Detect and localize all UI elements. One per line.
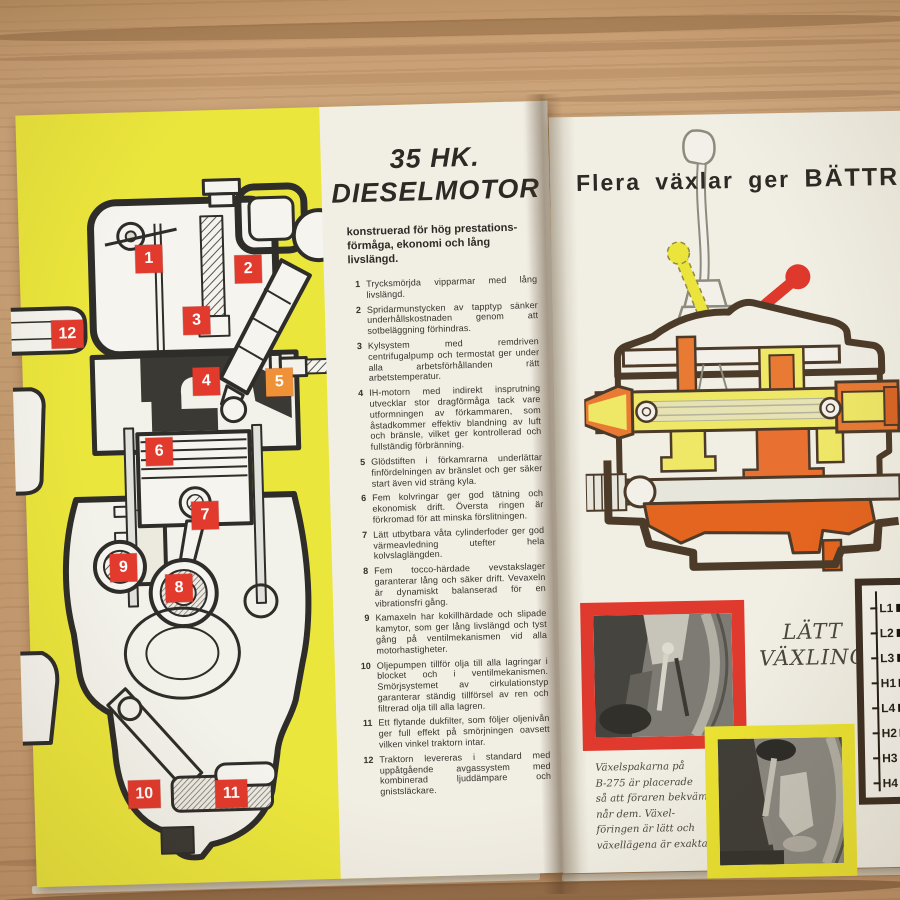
- feature-number: 7: [353, 530, 368, 563]
- feature-item: 2 Spridarmunstycken av tapptyp sänker un…: [347, 300, 539, 338]
- feature-item: 4 IH-motorn med indirekt insprutning utv…: [349, 383, 542, 453]
- brochure-left-page: 1 2 3 4 5 6 7 8 9 10 11 12 35 HK. DIESEL…: [15, 101, 568, 888]
- feature-text: Oljepumpen tillför olja till alla lagrin…: [377, 655, 549, 714]
- engine-part-label-3: 3: [183, 306, 211, 335]
- photo-caption-line: så att föraren bekvämt: [596, 789, 714, 807]
- gear-tick: [874, 782, 881, 784]
- engine-part-label-9: 9: [110, 553, 138, 582]
- feature-number: 11: [358, 718, 373, 751]
- gear-tick: [871, 632, 878, 634]
- feature-text: Lätt utbytbara våta cylinderfoder ger go…: [373, 525, 545, 562]
- feature-text: Ett flytande dukfilter, som följer oljen…: [378, 713, 550, 750]
- gear-tick: [870, 607, 877, 609]
- feature-text: Fem kolvringar ger god tätning och ekono…: [372, 488, 544, 525]
- page-title-line2: DIESELMOTOR: [329, 172, 542, 211]
- feature-text: Traktorn levereras i standard med uppåtg…: [379, 750, 551, 798]
- gear-position-row: H1: [871, 669, 900, 695]
- gear-position-label: H1: [881, 675, 897, 689]
- easy-shifting-line1: LÄTT: [756, 617, 868, 645]
- feature-text: Fem tocco-härdade vevstakslager garanter…: [374, 561, 546, 609]
- headline-caps: BÄTTRE ARB: [804, 161, 900, 192]
- feature-item: 5 Glödstiften i förkamrarna underlättar …: [351, 452, 543, 490]
- intro-paragraph: konstruerad för hög prestations-förmåga,…: [347, 220, 534, 267]
- feature-item: 9 Kamaxeln har kokillhärdade och slipade…: [355, 608, 547, 657]
- gear-position-label: L4: [881, 700, 895, 714]
- wood-grain-streak: [540, 88, 900, 104]
- gear-tick: [873, 732, 880, 734]
- feature-number: 10: [357, 660, 373, 714]
- wood-grain-streak: [0, 62, 900, 91]
- feature-number: 4: [349, 388, 365, 453]
- gear-shift-pattern-chart: L1 L2 L3 H1: [855, 577, 900, 805]
- gear-position-row: L1: [870, 594, 900, 620]
- feature-number: 2: [347, 305, 362, 338]
- feature-text: Kylsystem med remdriven centrifugalpump …: [368, 336, 540, 384]
- wood-table-surface: 1 2 3 4 5 6 7 8 9 10 11 12 35 HK. DIESEL…: [0, 0, 900, 900]
- feature-text: Spridarmunstycken av tapptyp sänker unde…: [367, 300, 539, 337]
- feature-text: Trycksmörjda vipparmar med lång livsläng…: [366, 274, 538, 300]
- engine-part-label-4: 4: [192, 367, 220, 396]
- gear-position-row: L2: [870, 619, 900, 645]
- feature-text: Kamaxeln har kokillhärdade och slipade k…: [375, 608, 547, 656]
- engine-cutaway-diagram: [7, 175, 346, 874]
- feature-item: 8 Fem tocco-härdade vevstakslager garant…: [354, 561, 546, 610]
- engine-part-label-2: 2: [234, 255, 262, 284]
- gear-position-row: L3: [871, 644, 900, 670]
- feature-number: 5: [351, 457, 366, 490]
- page-title: 35 HK. DIESELMOTOR: [328, 139, 542, 211]
- gear-position-label: H3: [882, 750, 898, 764]
- engine-part-label-12: 12: [51, 320, 84, 349]
- feature-item: 11 Ett flytande dukfilter, som följer ol…: [358, 713, 550, 751]
- brochure-right-page: Flera växlar ger BÄTTRE ARB: [549, 111, 900, 874]
- gear-position-label: H2: [882, 725, 898, 739]
- gear-tick: [872, 707, 879, 709]
- photo-caption-line: växellägena är exakta.: [597, 836, 715, 854]
- feature-item: 3 Kylsystem med remdriven centrifugalpum…: [348, 336, 540, 385]
- gear-position-label: L3: [880, 650, 894, 664]
- gear-tick: [871, 657, 878, 659]
- gear-tick: [873, 757, 880, 759]
- gear-bar: [897, 628, 900, 637]
- photo-caption: Växelspakarna på B-275 är placerade så a…: [595, 758, 715, 853]
- feature-item: 7 Lätt utbytbara våta cylinderfoder ger …: [353, 525, 545, 563]
- gear-position-label: H4: [882, 775, 898, 789]
- feature-list: 1 Trycksmörjda vipparmar med lång livslä…: [346, 274, 551, 798]
- engine-part-label-8: 8: [165, 574, 193, 603]
- engine-part-label-1: 1: [135, 245, 163, 274]
- bw-photo-shift-lever: [718, 737, 844, 865]
- feature-number: 12: [359, 755, 374, 799]
- engine-part-label-7: 7: [191, 501, 219, 530]
- engine-part-label-5: 5: [265, 368, 293, 397]
- bw-photo-levers: [593, 613, 733, 738]
- gear-position-label: L2: [880, 625, 894, 639]
- headline-regular: Flera växlar ger: [576, 166, 791, 196]
- feature-number: 3: [348, 341, 363, 385]
- gear-position-label: L1: [879, 601, 893, 615]
- engine-part-label-10: 10: [128, 780, 161, 809]
- engine-part-label-6: 6: [145, 437, 173, 466]
- easy-shifting-line2: VÄXLING: [757, 643, 869, 671]
- feature-number: 8: [354, 566, 369, 610]
- feature-item: 10 Oljepumpen tillför olja till alla lag…: [357, 655, 549, 714]
- gear-position-row: H4: [873, 769, 900, 795]
- feature-item: 6 Fem kolvringar ger god tätning och eko…: [352, 488, 544, 526]
- left-page-text-column: 35 HK. DIESELMOTOR konstruerad för hög p…: [319, 101, 568, 879]
- feature-number: 9: [355, 613, 370, 657]
- feature-text: IH-motorn med indirekt insprutning utvec…: [369, 383, 542, 453]
- feature-item: 12 Traktorn levereras i standard med upp…: [359, 750, 551, 799]
- feature-number: 1: [346, 279, 361, 301]
- feature-number: 6: [352, 493, 367, 526]
- photo-gear-levers-yellow-frame: [704, 724, 857, 879]
- engine-part-label-11: 11: [215, 779, 248, 808]
- feature-item: 1 Trycksmörjda vipparmar med lång livslä…: [346, 274, 538, 301]
- gear-tick: [872, 682, 879, 684]
- easy-shifting-label: LÄTT VÄXLING: [756, 617, 869, 671]
- gear-position-row: H2: [872, 719, 900, 745]
- gear-position-row: L4: [872, 694, 900, 720]
- gear-bar: [896, 603, 900, 612]
- feature-text: Glödstiften i förkamrarna underlättar fi…: [371, 452, 543, 489]
- gear-position-row: H3: [873, 744, 900, 770]
